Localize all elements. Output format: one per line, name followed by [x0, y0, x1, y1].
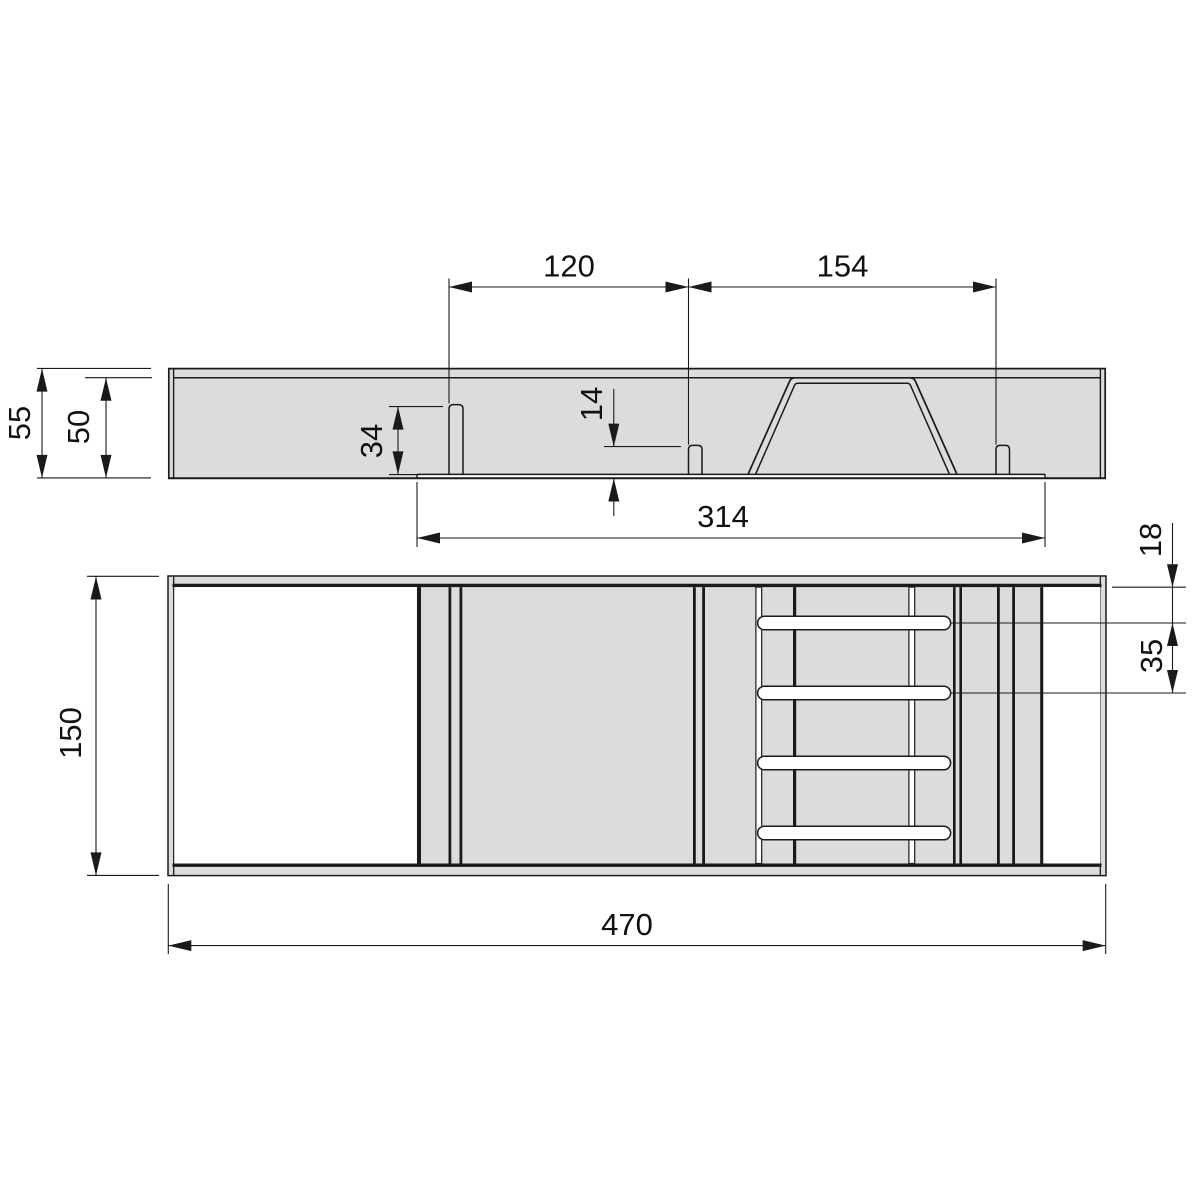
dimension-314: 314 — [417, 482, 1045, 547]
arrowhead — [689, 282, 712, 293]
dimension-35: 35 — [1134, 639, 1178, 693]
arrowhead — [37, 455, 48, 478]
dimension-314-label: 314 — [697, 499, 749, 534]
plan-view — [168, 576, 1106, 876]
dimension-470: 470 — [168, 884, 1105, 954]
arrowhead — [1022, 533, 1045, 544]
dimension-35-label: 35 — [1134, 639, 1169, 673]
compartment-left — [174, 587, 416, 863]
compartment-right — [1043, 587, 1100, 863]
arrowhead — [101, 455, 112, 478]
dimension-470-label: 470 — [601, 907, 653, 942]
dimension-34-label: 34 — [354, 424, 389, 458]
dimension-150-label: 150 — [53, 707, 88, 759]
dimension-120-label: 120 — [543, 248, 595, 283]
knife-slot-1 — [758, 616, 951, 630]
dimension-150: 150 — [53, 576, 159, 875]
technical-drawing: 120 154 55 50 — [0, 0, 1200, 1200]
recess-gap — [418, 475, 1045, 478]
arrowhead — [37, 369, 48, 392]
knife-slot-2 — [758, 686, 951, 700]
arrowhead — [666, 282, 689, 293]
arrowhead — [608, 479, 619, 502]
arrowhead — [1167, 564, 1178, 587]
arrowhead — [417, 533, 440, 544]
arrowhead — [168, 940, 191, 951]
knife-slot-3 — [758, 756, 951, 770]
dimension-18-label: 18 — [1133, 523, 1168, 557]
arrowhead — [973, 282, 996, 293]
arrowhead — [449, 282, 472, 293]
dimension-50-label: 50 — [61, 410, 96, 444]
arrowhead — [1083, 940, 1106, 951]
dimension-14-label: 14 — [574, 387, 609, 421]
drawing-canvas: 120 154 55 50 — [0, 0, 1200, 1200]
dimension-50: 50 — [61, 378, 152, 478]
dimension-154-label: 154 — [817, 248, 869, 283]
dimension-55-label: 55 — [2, 406, 37, 440]
arrowhead — [91, 852, 102, 875]
side-view — [168, 368, 1106, 478]
arrowhead — [101, 378, 112, 401]
profile-body — [168, 368, 1106, 478]
knife-slot-4 — [758, 826, 951, 840]
arrowhead — [91, 577, 102, 600]
